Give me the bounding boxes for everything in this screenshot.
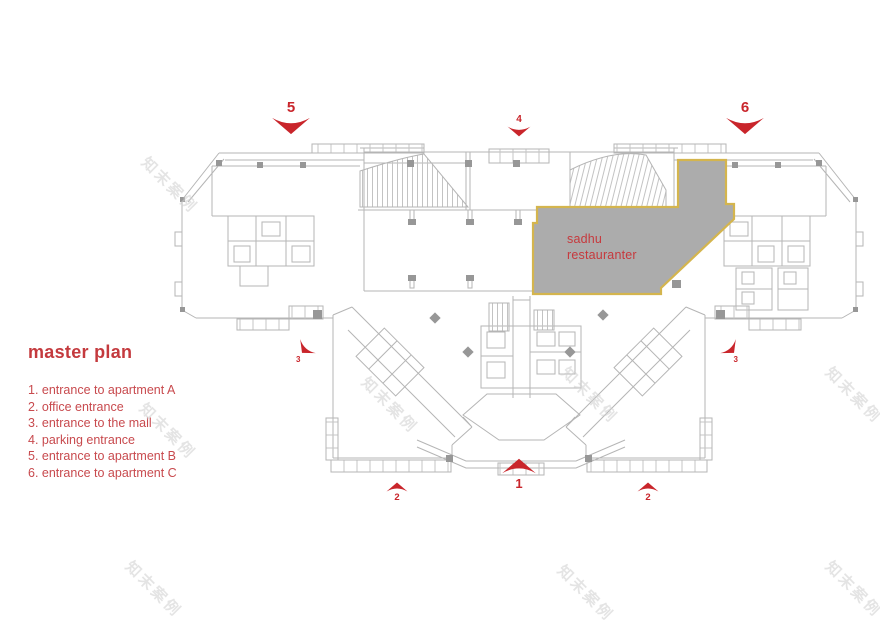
legend-item-1: 1. entrance to apartment A — [28, 382, 177, 399]
arrow-down-icon — [507, 126, 531, 137]
arrow-up-icon — [500, 458, 538, 474]
entrance-marker-4: 4 — [507, 114, 531, 137]
arrow-down-icon — [269, 117, 313, 135]
structural-columns — [180, 160, 858, 462]
entrance-marker-2-left: 2 — [386, 481, 408, 503]
arrow-up-icon — [637, 482, 659, 492]
entrance-marker-3-left: 3 — [294, 344, 320, 364]
restaurant-label-line1: sadhu — [567, 231, 637, 247]
master-plan-page: sadhu restauranter master plan 1. entran… — [0, 0, 880, 622]
marker-number: 1 — [500, 476, 538, 491]
marker-number: 5 — [269, 99, 313, 116]
floor-plan-drawing — [0, 0, 880, 622]
restaurant-label: sadhu restauranter — [567, 231, 637, 263]
entrance-marker-3-right: 3 — [716, 344, 742, 364]
entrance-marker-6: 6 — [723, 99, 767, 135]
legend-item-4: 4. parking entrance — [28, 432, 177, 449]
legend-title: master plan — [28, 342, 177, 363]
stair-fan-right — [570, 154, 666, 207]
entrance-marker-1: 1 — [500, 457, 538, 491]
marker-number: 6 — [723, 99, 767, 116]
marker-number: 2 — [637, 492, 659, 503]
restaurant-label-line2: restauranter — [567, 247, 637, 263]
entrance-marker-5: 5 — [269, 99, 313, 135]
marker-number: 2 — [386, 492, 408, 503]
arrow-up-icon — [386, 482, 408, 492]
legend-item-5: 5. entrance to apartment B — [28, 448, 177, 465]
arrow-down-icon — [723, 117, 767, 135]
legend-item-6: 6. entrance to apartment C — [28, 465, 177, 482]
marker-number: 4 — [507, 114, 531, 125]
entrance-marker-2-right: 2 — [637, 481, 659, 503]
